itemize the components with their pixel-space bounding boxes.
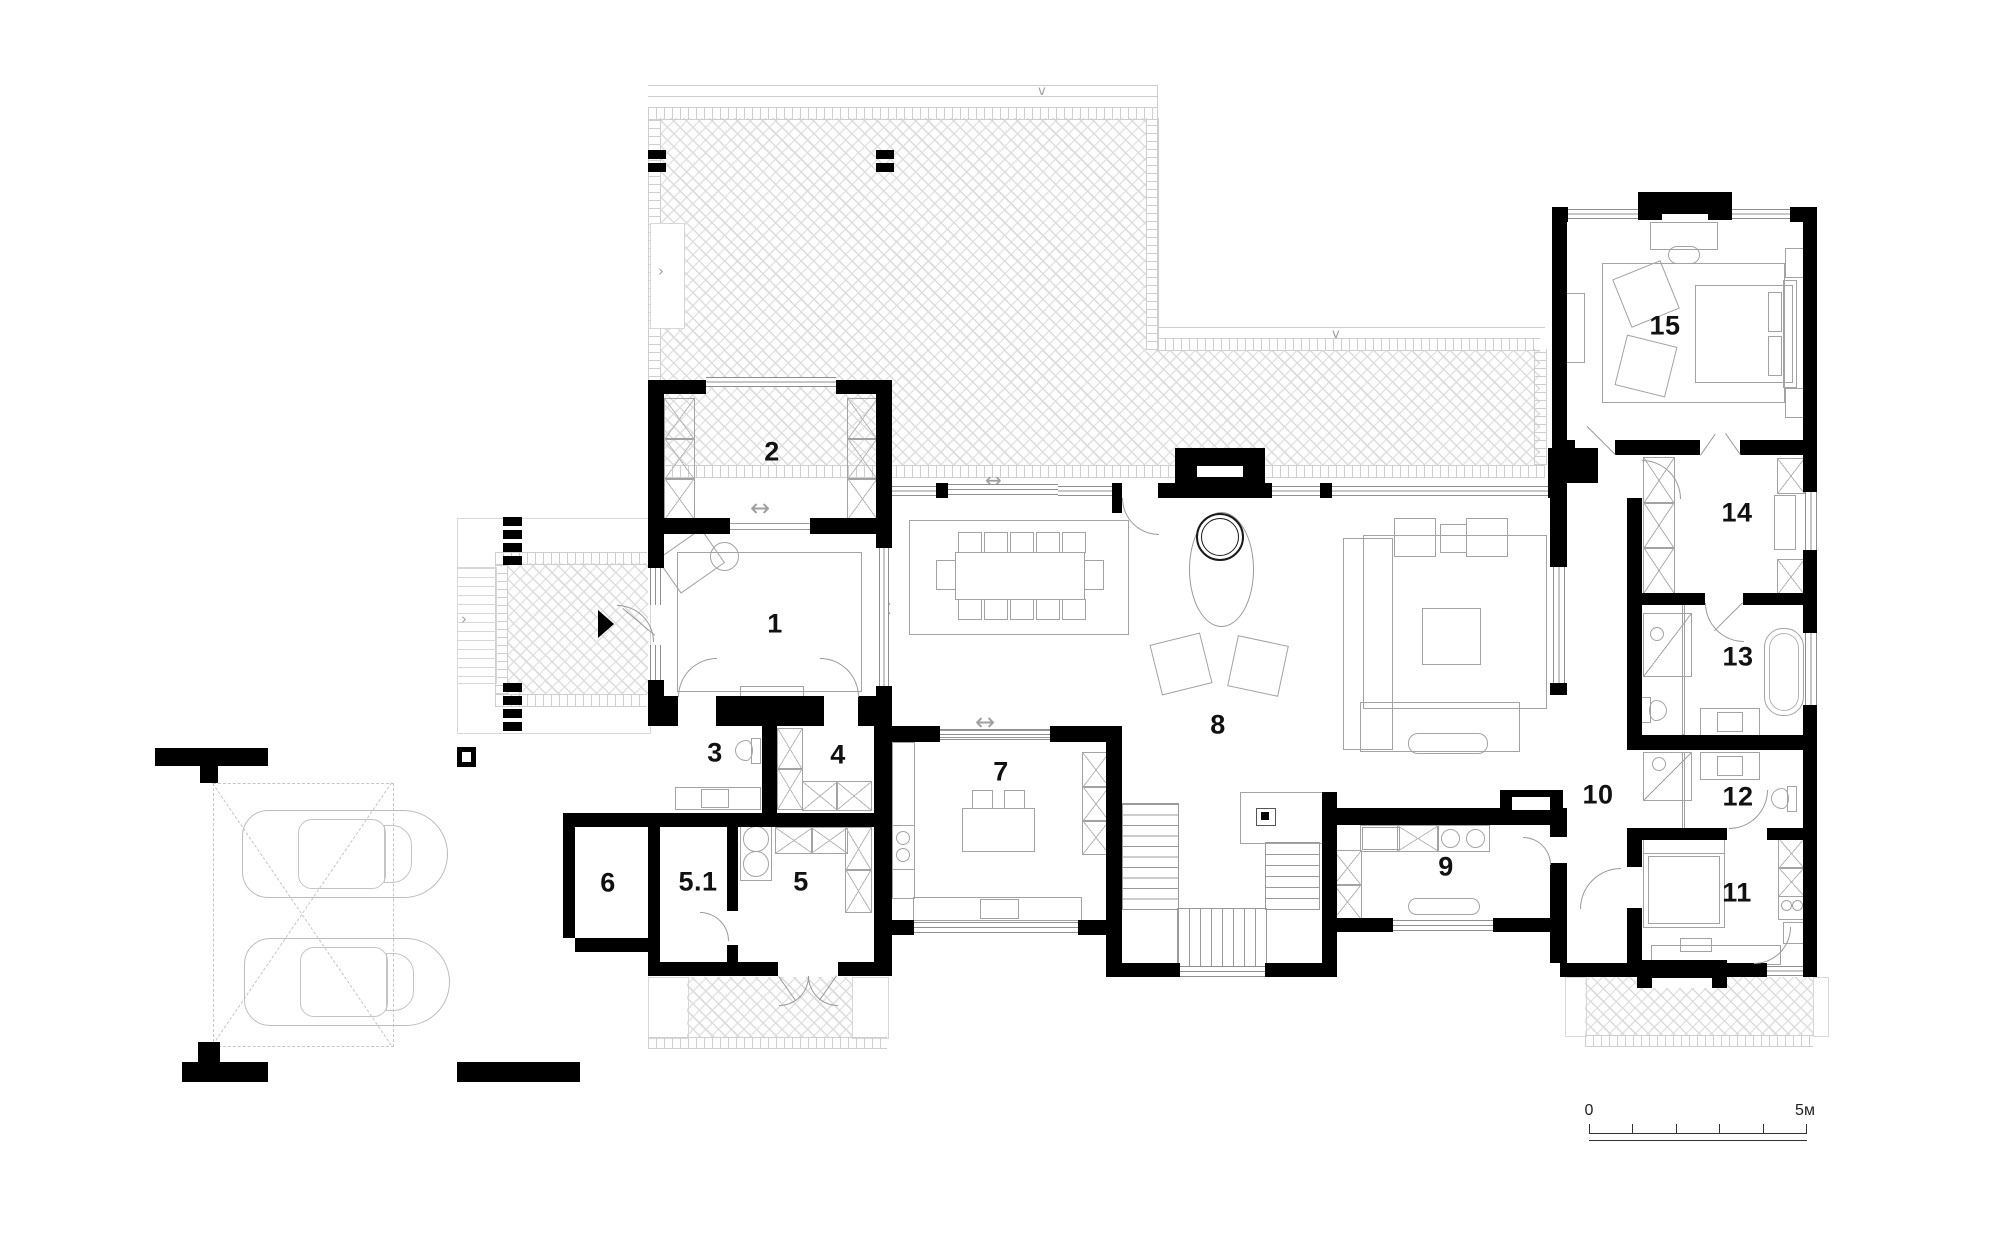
terrace-side-panel xyxy=(1565,977,1587,1037)
sink-room3 xyxy=(701,789,729,808)
drain-arrow-icon: v xyxy=(1038,84,1046,99)
room-label-10: 10 xyxy=(1582,780,1613,811)
wall xyxy=(716,696,824,726)
room-label-3: 3 xyxy=(707,738,723,769)
car-windshield xyxy=(384,825,412,883)
wall xyxy=(876,163,894,172)
ironing-board xyxy=(1408,898,1480,915)
door-arc-room11 xyxy=(1580,868,1621,909)
window xyxy=(1553,567,1565,683)
fireplace-flue-inner xyxy=(1201,518,1239,556)
closet-cabinet xyxy=(1333,884,1362,920)
closet-cabinet xyxy=(847,438,878,480)
room-label-2: 2 xyxy=(764,437,780,468)
window xyxy=(1180,966,1265,977)
washer-room9 xyxy=(1441,829,1460,848)
wall xyxy=(1627,593,1705,605)
bench-living xyxy=(1408,733,1488,754)
wall xyxy=(878,686,892,698)
wall xyxy=(457,1062,580,1082)
entrance-arrow-icon xyxy=(598,610,614,638)
window xyxy=(1732,209,1790,219)
room-label-7: 7 xyxy=(993,757,1009,788)
slider-track xyxy=(940,730,1050,731)
toilet-room13 xyxy=(1641,697,1667,723)
slider-track xyxy=(940,737,1050,738)
room-label-9: 9 xyxy=(1438,852,1454,883)
washer-room5 xyxy=(743,826,769,852)
wall xyxy=(1627,828,1727,840)
eave-line xyxy=(1157,327,1545,328)
wall xyxy=(1050,726,1108,742)
wall-notch xyxy=(1662,214,1708,222)
sink-room12 xyxy=(1717,756,1743,776)
burner-icon xyxy=(896,831,910,845)
dining-chair xyxy=(984,532,1008,553)
shower-head-icon xyxy=(1652,757,1666,771)
car-cabin xyxy=(298,819,386,889)
stool xyxy=(1004,790,1025,809)
dryer-room5 xyxy=(743,851,769,877)
scale-band xyxy=(1589,1133,1807,1141)
closet-cabinet xyxy=(1778,867,1805,897)
wall xyxy=(563,813,876,827)
closet-cabinet xyxy=(664,478,695,520)
closet-cabinet xyxy=(775,827,813,854)
wall xyxy=(503,556,522,565)
dining-chair xyxy=(1010,532,1034,553)
chair-room1 xyxy=(710,542,739,571)
dining-chair xyxy=(1010,599,1034,620)
terrace-main-lower-band xyxy=(660,350,1540,465)
scale-tick xyxy=(1806,1124,1807,1133)
wall xyxy=(648,534,664,568)
closet-cabinet xyxy=(1777,559,1805,595)
wall xyxy=(648,380,706,394)
closet-cabinet xyxy=(664,398,695,440)
wall xyxy=(727,827,738,911)
eave-line xyxy=(648,96,1158,97)
drain-arrow-icon: v xyxy=(1332,327,1340,342)
dining-chair xyxy=(958,599,982,620)
wall xyxy=(648,163,666,172)
window xyxy=(914,922,1078,933)
scale-tick xyxy=(1589,1124,1590,1133)
wall xyxy=(503,530,522,539)
closet-cabinet xyxy=(777,728,803,770)
window xyxy=(1568,209,1638,219)
wall-notch xyxy=(462,752,471,762)
wall xyxy=(200,766,218,783)
entry-direction-arrow: › xyxy=(461,610,467,628)
closet-cabinet xyxy=(1643,547,1675,594)
burner-icon xyxy=(1781,900,1792,911)
scale-end-label: 5м xyxy=(1795,1102,1815,1120)
window xyxy=(650,645,661,680)
toilet-bowl xyxy=(1771,788,1789,809)
slider-track xyxy=(730,523,810,524)
room-label-11: 11 xyxy=(1722,878,1752,909)
window xyxy=(879,548,889,686)
partition-line xyxy=(1682,603,1685,735)
sink-room9 xyxy=(1362,827,1400,850)
closet-cabinet xyxy=(1777,458,1805,494)
wall xyxy=(648,394,664,518)
kitchen-island xyxy=(962,808,1035,852)
window xyxy=(1767,966,1803,976)
wall xyxy=(1493,918,1553,932)
dining-chair xyxy=(958,532,982,553)
toilet-room3 xyxy=(735,738,761,764)
wall xyxy=(892,920,914,935)
wall xyxy=(1552,207,1568,222)
wall xyxy=(1627,908,1642,963)
terrace-side-panel xyxy=(648,977,689,1039)
wall xyxy=(876,150,894,159)
closet-cabinet xyxy=(802,781,838,811)
dining-chair xyxy=(984,599,1008,620)
wall xyxy=(1627,735,1817,750)
car-top xyxy=(242,810,448,898)
window xyxy=(1393,920,1493,931)
wall xyxy=(1320,483,1332,498)
window xyxy=(1272,486,1320,496)
terrace-main-upper xyxy=(660,118,1146,350)
wall xyxy=(727,945,738,962)
dryer-room9 xyxy=(1466,829,1485,848)
room-label-1: 1 xyxy=(767,609,783,640)
dining-chair xyxy=(1036,532,1060,553)
wall xyxy=(503,543,522,552)
eave-line xyxy=(1157,85,1158,338)
room-label-8: 8 xyxy=(1210,710,1226,741)
wall xyxy=(1322,792,1337,977)
wall xyxy=(762,726,777,813)
wall xyxy=(1552,440,1575,455)
wall xyxy=(648,518,730,534)
scale-ruler xyxy=(1589,1124,1807,1139)
wall xyxy=(878,498,890,548)
room-label-4: 4 xyxy=(830,740,846,771)
tray-room11 xyxy=(1680,938,1712,952)
wall xyxy=(648,827,660,962)
window xyxy=(1058,486,1112,496)
burner-icon xyxy=(896,848,910,862)
wall xyxy=(1550,483,1567,567)
dining-chair xyxy=(1062,532,1086,553)
eave-line xyxy=(648,85,1158,86)
window xyxy=(706,377,836,387)
wall xyxy=(836,380,892,394)
dining-chair xyxy=(1036,599,1060,620)
closet-cabinet xyxy=(845,869,872,913)
scale-tick xyxy=(1719,1124,1720,1133)
chair-room15 xyxy=(1668,246,1700,264)
stool xyxy=(972,790,993,809)
room-label-13: 13 xyxy=(1722,642,1753,673)
wall xyxy=(1122,963,1180,977)
headboard-room11 xyxy=(1643,838,1725,854)
wall xyxy=(1803,550,1817,633)
side-table xyxy=(1440,524,1467,553)
wall xyxy=(575,938,650,952)
closet-cabinet xyxy=(1778,838,1805,869)
wall xyxy=(858,696,892,726)
toilet-room12 xyxy=(1771,786,1797,812)
closet-cabinet xyxy=(1333,850,1362,886)
terrace-border xyxy=(648,1037,887,1049)
wall xyxy=(1550,825,1567,837)
car-bottom xyxy=(244,938,450,1026)
dining-chair-end xyxy=(936,560,956,590)
burner-icon xyxy=(1792,900,1803,911)
room-label-15: 15 xyxy=(1649,311,1680,342)
wall xyxy=(1727,963,1767,977)
column-core xyxy=(1261,812,1269,820)
coffee-table xyxy=(1422,608,1481,665)
wall xyxy=(648,962,778,976)
sink-room13 xyxy=(1717,712,1743,732)
wall xyxy=(503,709,522,718)
wall xyxy=(1106,726,1122,977)
wall xyxy=(1803,222,1817,440)
terrace-border xyxy=(648,465,1545,478)
shower-head-icon xyxy=(1650,627,1664,641)
wall xyxy=(182,1062,268,1082)
stair-flight-bottom xyxy=(1177,908,1267,967)
wall xyxy=(503,517,522,526)
step-direction-arrow: › xyxy=(658,262,664,280)
closet-cabinet xyxy=(777,768,803,810)
closet-cabinet xyxy=(1643,502,1675,549)
wall xyxy=(648,680,664,696)
bathtub-room13 xyxy=(1764,628,1804,716)
window xyxy=(1805,492,1817,550)
floor-plan-canvas: v v › › ↔ ↔ ↕ ↔ xyxy=(0,0,2006,1259)
window xyxy=(650,568,661,605)
wall xyxy=(1112,483,1122,513)
terrace-border xyxy=(1157,338,1540,351)
wall xyxy=(1550,920,1567,963)
wall xyxy=(155,748,268,766)
headboard-room15 xyxy=(1783,280,1797,388)
wall xyxy=(503,722,522,731)
room-label-5-1: 5.1 xyxy=(678,867,717,898)
scale-tick xyxy=(1632,1124,1633,1133)
wall xyxy=(892,726,940,742)
wall xyxy=(936,483,948,498)
wall xyxy=(1550,683,1567,695)
scale-tick xyxy=(1676,1124,1677,1133)
stair-landing xyxy=(1240,792,1325,844)
door-arc-room9 xyxy=(1523,837,1551,865)
pillow xyxy=(1768,336,1782,376)
scale-start-label: 0 xyxy=(1585,1102,1594,1120)
wall xyxy=(503,696,522,705)
slider-arrow-icon: ↔ xyxy=(750,494,770,522)
room-label-6: 6 xyxy=(600,868,616,899)
wall-notch xyxy=(1512,797,1550,810)
car-windshield xyxy=(386,953,414,1011)
wall xyxy=(1337,918,1393,932)
armchair-living xyxy=(1394,518,1436,557)
counter-kitchen-left xyxy=(892,742,915,899)
terrace-side-panel xyxy=(852,977,889,1039)
wall xyxy=(1550,863,1567,920)
closet-cabinet xyxy=(811,827,848,854)
wall xyxy=(1560,963,1637,977)
closet-cabinet xyxy=(847,398,878,440)
armchair-room8 xyxy=(1149,632,1212,695)
wall xyxy=(874,726,892,976)
dining-chair xyxy=(1062,599,1086,620)
wall xyxy=(648,150,666,159)
terrace-border xyxy=(1585,1035,1813,1047)
door-arc-room14 xyxy=(1642,460,1681,499)
armchair-living xyxy=(1466,518,1508,557)
stair-flight-left xyxy=(1122,803,1179,910)
wall xyxy=(1158,483,1272,498)
terrace-border xyxy=(648,107,1158,120)
wall xyxy=(1265,963,1323,977)
room-label-12: 12 xyxy=(1722,782,1753,813)
door-arc-room11-terrace xyxy=(1754,927,1791,964)
wall xyxy=(563,827,575,938)
bathtub-inner xyxy=(1769,633,1799,711)
wall xyxy=(1803,705,1817,963)
terrace-step-box xyxy=(650,223,685,329)
terrace-border xyxy=(1534,349,1547,465)
door-leaf xyxy=(1700,434,1717,456)
wall xyxy=(198,1042,220,1062)
wall xyxy=(1627,498,1642,740)
wall xyxy=(1803,440,1817,492)
closet-cabinet xyxy=(664,438,695,480)
partition-line xyxy=(1682,752,1685,830)
window xyxy=(1805,633,1817,705)
room-label-14: 14 xyxy=(1721,498,1752,529)
dining-table xyxy=(955,552,1085,600)
wall xyxy=(1803,963,1817,977)
bench-room14 xyxy=(1774,495,1796,550)
terrace-side-panel xyxy=(1813,977,1829,1037)
toilet-bowl xyxy=(735,740,753,761)
stair-flight-right xyxy=(1265,842,1320,910)
closet-cabinet xyxy=(836,781,872,811)
wall xyxy=(1790,207,1817,222)
dining-chair-end xyxy=(1084,560,1104,590)
wall xyxy=(1078,920,1108,935)
mattress-room11 xyxy=(1648,856,1720,924)
wall xyxy=(1615,440,1700,455)
scale-tick xyxy=(1763,1124,1764,1133)
wall xyxy=(878,483,892,498)
wall xyxy=(648,696,678,726)
wall-notch xyxy=(1652,978,1712,988)
door-arc-room5-1 xyxy=(700,912,729,941)
window xyxy=(1332,486,1548,496)
toilet-bowl xyxy=(1649,700,1667,721)
window xyxy=(948,484,1058,495)
slider-track xyxy=(730,529,810,530)
room-label-5: 5 xyxy=(793,867,809,898)
window xyxy=(892,486,936,496)
armchair-room8 xyxy=(1227,635,1289,697)
wall-notch xyxy=(1197,466,1243,477)
wall xyxy=(503,683,522,692)
pillow xyxy=(1768,292,1782,332)
door-arc-room13 xyxy=(1705,603,1744,642)
closet-cabinet xyxy=(845,827,872,871)
sink-kitchen xyxy=(980,899,1019,919)
closet-cabinet xyxy=(847,478,878,520)
car-cabin xyxy=(300,947,388,1017)
